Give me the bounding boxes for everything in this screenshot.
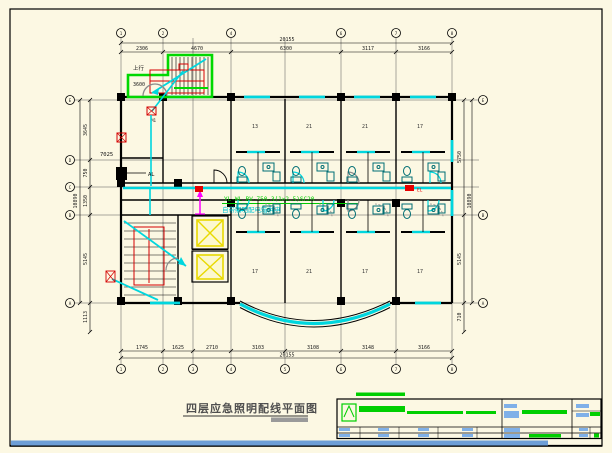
company-logo-glyph-icon <box>344 406 354 417</box>
dim-bot-1: 1745 <box>136 345 148 351</box>
dimensions-bottom: 1745 1625 2710 3103 3108 3148 3166 20155 <box>119 345 454 360</box>
drawing-no-bar <box>529 434 561 438</box>
room-upper-3: 21 <box>346 124 390 183</box>
dim-right-3: 710 <box>457 312 463 321</box>
svg-text:17: 17 <box>417 124 423 130</box>
dim-left-overall: 10890 <box>73 193 79 208</box>
sheet-border <box>10 9 602 446</box>
room-upper-1: 13 <box>236 124 280 183</box>
dim-bot-5: 3108 <box>307 345 319 351</box>
dim-left-3: 1350 <box>83 195 89 207</box>
dim-bot-2: 1625 <box>172 345 184 351</box>
room-lower-4: 17 <box>401 200 445 275</box>
dim-bot-3: 2710 <box>206 345 218 351</box>
dim-bot-6: 3148 <box>362 345 374 351</box>
panel-tags: AL 7025 <box>100 152 155 180</box>
title-block <box>337 393 601 440</box>
dim-top-5: 3166 <box>418 46 430 52</box>
device-tag: EL <box>417 188 423 194</box>
emergency-devices: EL <box>195 185 423 194</box>
stair-upper <box>128 55 212 97</box>
dim-top-3: 6300 <box>280 46 292 52</box>
dim-top-2: 4670 <box>191 46 203 52</box>
room-upper-2: 21 <box>290 124 334 183</box>
dimensions-right: 5750 5145 710 10890 <box>457 98 474 334</box>
door-tag-label: M1 <box>151 118 157 123</box>
dim-bot-4: 3103 <box>252 345 264 351</box>
dimensions-left: 3645 750 1350 5145 1113 10890 <box>73 98 92 334</box>
sheet-no-bar <box>590 412 600 416</box>
company-name-text-bar <box>359 406 405 412</box>
room-tag: 7025 <box>100 152 113 158</box>
stair-landing-label: 3600 <box>133 82 145 88</box>
dimensions-top: 20155 2306 4670 6300 3117 3166 <box>119 37 454 54</box>
dim-right-overall: 10890 <box>467 193 473 208</box>
dim-right-1: 5750 <box>457 151 463 163</box>
room-upper-4: 17 <box>401 124 445 183</box>
dim-left-4: 5145 <box>83 253 89 265</box>
drawing-title: 四层应急照明配线平面图 <box>183 401 318 422</box>
dim-right-2: 5145 <box>457 253 463 265</box>
room-lower-2: 21 <box>290 200 334 275</box>
dim-top-1: 2306 <box>136 46 148 52</box>
svg-text:17: 17 <box>417 269 423 275</box>
signature-line-bar <box>407 411 463 414</box>
dim-left-5: 1113 <box>83 311 89 323</box>
dim-top-overall: 20155 <box>279 37 294 43</box>
svg-text:21: 21 <box>306 124 312 130</box>
signature-line-bar <box>466 411 496 414</box>
project-name-bar <box>522 410 567 414</box>
dim-left-2: 750 <box>83 168 89 177</box>
elevator-shafts <box>192 216 228 282</box>
titleblock-green-bar <box>356 393 405 397</box>
stair-lower <box>106 221 186 300</box>
dim-left-1: 3645 <box>83 124 89 136</box>
svg-text:17: 17 <box>252 269 258 275</box>
floor-plan-svg: 20155 2306 4670 6300 3117 3166 1745 1625… <box>0 0 612 453</box>
svg-text:13: 13 <box>252 124 258 130</box>
svg-text:21: 21 <box>306 269 312 275</box>
corridor-wiring <box>117 71 451 215</box>
stair-up-label: 上行 <box>133 64 145 72</box>
cad-drawing-canvas: 20155 2306 4670 6300 3117 3166 1745 1625… <box>0 0 612 453</box>
bottom-blue-bar <box>11 441 548 446</box>
dim-bot-overall: 20155 <box>279 353 294 359</box>
revision-square <box>594 434 599 438</box>
svg-text:21: 21 <box>362 124 368 130</box>
curved-wall <box>240 301 390 327</box>
panel-tag: AL <box>148 172 155 178</box>
dim-bot-7: 3166 <box>418 345 430 351</box>
room-lower-3: 17 <box>346 200 390 275</box>
svg-text:17: 17 <box>362 269 368 275</box>
page-title: 四层应急照明配线平面图 <box>186 401 318 415</box>
dim-top-4: 3117 <box>362 46 374 52</box>
